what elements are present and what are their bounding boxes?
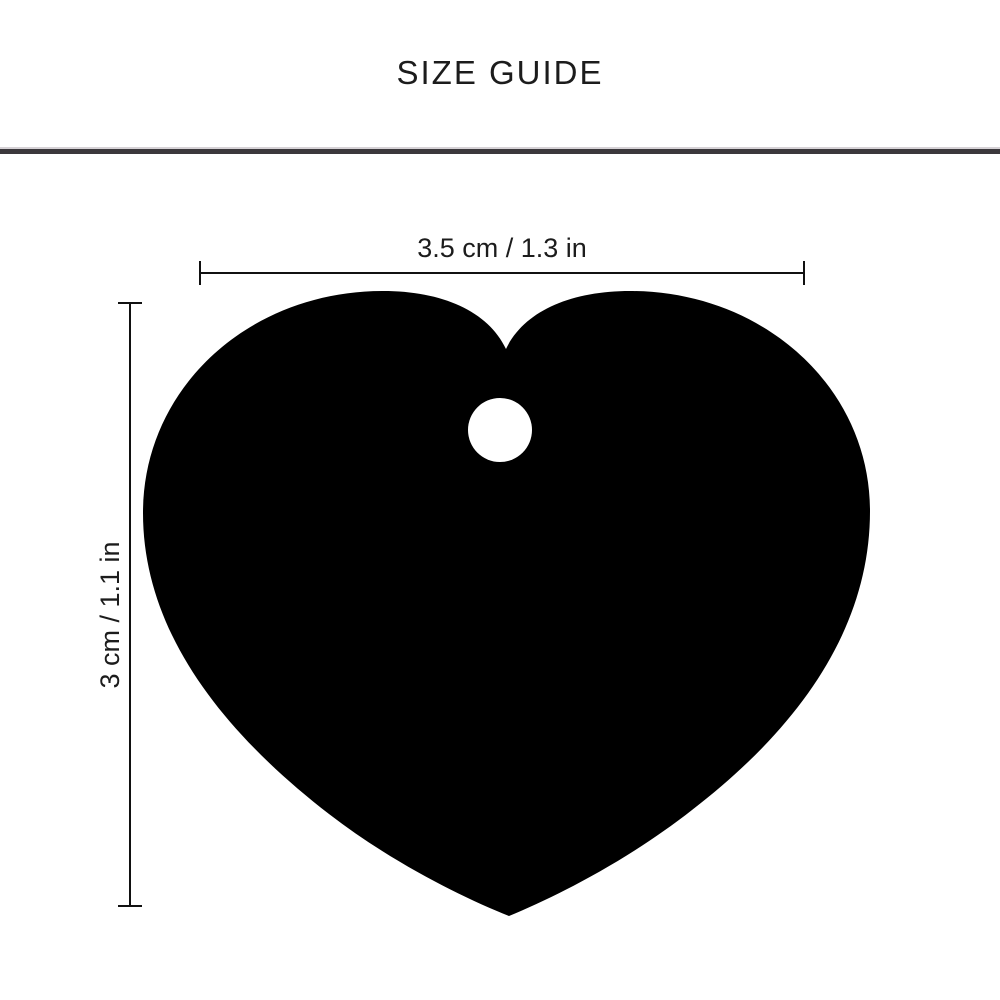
width-dimension-line: [199, 272, 805, 274]
height-dimension-label: 3 cm / 1.1 in: [95, 415, 125, 815]
size-guide-page: SIZE GUIDE 3.5 cm / 1.3 in 3 cm / 1.1 in: [0, 0, 1000, 1000]
page-title: SIZE GUIDE: [0, 54, 1000, 92]
height-dimension-top-tick: [118, 302, 142, 304]
divider-main-line: [0, 149, 1000, 154]
width-dimension-right-tick: [803, 261, 805, 285]
header-divider: [0, 147, 1000, 154]
tag-hole: [468, 398, 532, 462]
height-dimension-bottom-tick: [118, 905, 142, 907]
heart-tag-shape: [143, 291, 870, 917]
height-dimension-line: [129, 303, 131, 907]
heart-silhouette: [143, 291, 870, 916]
width-dimension-left-tick: [199, 261, 201, 285]
width-dimension-label: 3.5 cm / 1.3 in: [199, 233, 805, 264]
